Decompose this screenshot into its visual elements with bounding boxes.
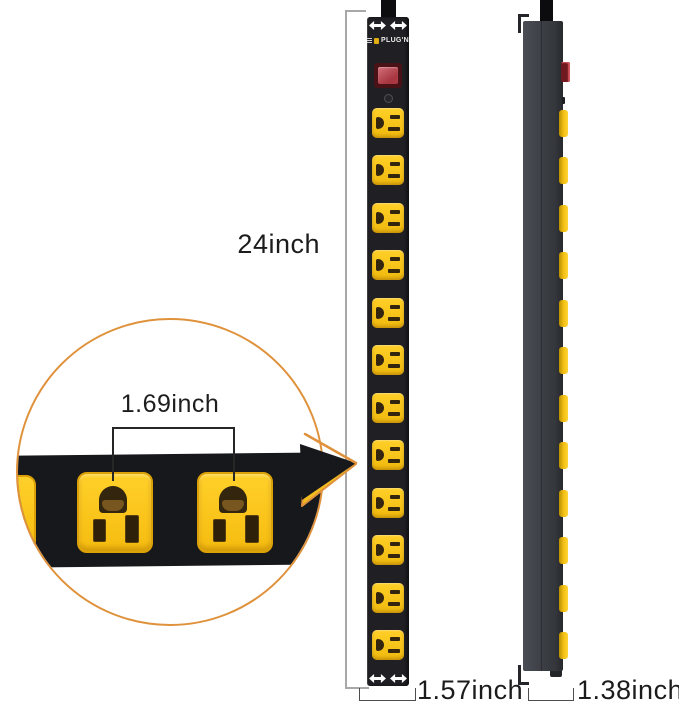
- ground-hole-icon: [219, 486, 247, 513]
- front-width-label: 1.57inch: [417, 677, 523, 704]
- slot-icon: [390, 162, 400, 166]
- ground-hole-icon: [376, 212, 384, 224]
- neutral-slot-icon: [93, 519, 106, 542]
- slot-icon: [388, 507, 400, 511]
- slot-icon: [390, 257, 400, 261]
- slot-icon: [388, 602, 400, 606]
- ground-hole-icon: [376, 117, 384, 129]
- slot-icon: [390, 447, 400, 451]
- mounting-foot: [550, 671, 562, 677]
- slot-icon: [388, 174, 400, 178]
- slot-icon: [390, 352, 400, 356]
- ground-hole-icon: [376, 592, 384, 604]
- ground-hole-icon: [376, 544, 384, 556]
- outlet-side-edge: [559, 205, 568, 232]
- slot-icon: [388, 222, 400, 226]
- ground-hole-icon: [376, 164, 384, 176]
- outlet-front: [372, 488, 404, 518]
- outlet-front: [372, 345, 404, 375]
- ground-hole-icon: [376, 402, 384, 414]
- mounting-bracket-bottom: [518, 665, 529, 685]
- outlet-side-edge: [559, 110, 568, 137]
- outlet-side-edge: [559, 395, 568, 422]
- outlet-detail-inset: 1.69inch: [16, 318, 324, 626]
- slot-icon: [390, 305, 400, 309]
- ground-hole-icon: [376, 497, 384, 509]
- ground-hole-icon: [376, 354, 384, 366]
- ground-hole-icon: [376, 449, 384, 461]
- slot-icon: [390, 115, 400, 119]
- neutral-slot-icon: [213, 519, 226, 542]
- side-depth-label: 1.38inch: [577, 677, 679, 704]
- ground-hole-icon: [376, 639, 384, 651]
- slot-icon: [388, 554, 400, 558]
- outlet-side-edge: [559, 442, 568, 469]
- slot-icon: [388, 317, 400, 321]
- spacing-label: 1.69inch: [18, 390, 322, 419]
- slot-icon: [390, 590, 400, 594]
- height-dimension-line: [345, 10, 347, 689]
- slot-icon: [388, 649, 400, 653]
- outlet-front: [372, 393, 404, 423]
- product-dimension-diagram: 24inch PLUG'N: [0, 0, 679, 705]
- outlet-side-edge: [559, 490, 568, 517]
- front-width-bracket: [359, 688, 416, 701]
- outlet-front: [372, 108, 404, 138]
- outlet-front: [372, 630, 404, 660]
- slot-icon: [390, 542, 400, 546]
- side-outlet-column: [517, 13, 573, 683]
- ground-hole-icon: [376, 307, 384, 319]
- outlet-side-edge: [559, 537, 568, 564]
- outlet-front: [372, 298, 404, 328]
- outlet-side-edge: [559, 157, 568, 184]
- outlet-partial: [16, 475, 36, 551]
- inset-pointer-icon: [296, 428, 360, 510]
- outlet-closeup-right: [197, 472, 273, 553]
- slot-icon: [388, 459, 400, 463]
- height-dimension-tick-top: [345, 10, 366, 12]
- outlet-front: [372, 250, 404, 280]
- power-strip-side-view: [517, 13, 573, 683]
- ground-hole-icon: [376, 259, 384, 271]
- outlet-front: [372, 155, 404, 185]
- power-strip-front-view: PLUG'N: [367, 17, 409, 686]
- outlet-front: [372, 535, 404, 565]
- slot-icon: [390, 637, 400, 641]
- outlet-side-edge: [559, 632, 568, 659]
- slot-icon: [390, 495, 400, 499]
- slot-icon: [390, 400, 400, 404]
- outlet-closeup-left: [77, 472, 153, 553]
- slot-icon: [388, 412, 400, 416]
- spacing-dimension-bracket: [112, 427, 235, 481]
- slot-icon: [388, 364, 400, 368]
- outlet-front: [372, 583, 404, 613]
- outlet-side-edge: [559, 252, 568, 279]
- outlet-side-edge: [559, 585, 568, 612]
- slot-icon: [388, 269, 400, 273]
- outlet-side-edge: [559, 300, 568, 327]
- side-depth-bracket: [528, 688, 574, 701]
- slot-icon: [390, 210, 400, 214]
- front-outlet-column: [367, 17, 409, 686]
- height-label: 24inch: [190, 231, 320, 258]
- slot-icon: [388, 127, 400, 131]
- outlet-front: [372, 203, 404, 233]
- hot-slot-icon: [125, 515, 139, 543]
- hot-slot-icon: [245, 515, 259, 543]
- outlet-front: [372, 440, 404, 470]
- ground-hole-icon: [99, 486, 127, 513]
- outlet-side-edge: [559, 347, 568, 374]
